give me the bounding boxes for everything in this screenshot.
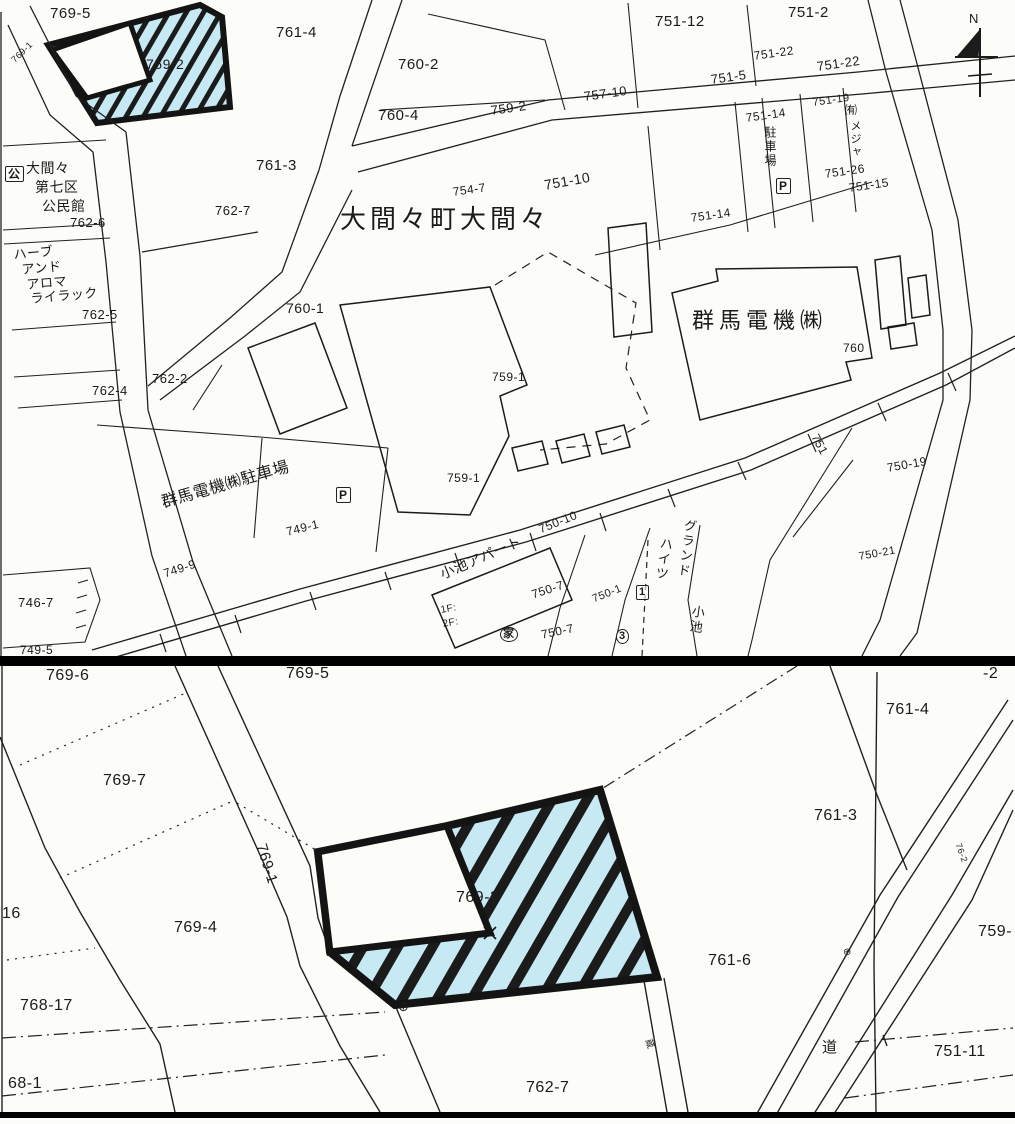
parcel-label: メジャ [849, 120, 860, 159]
marker-box-1: 1 [636, 585, 649, 600]
parcel-label: 762-7 [526, 1080, 569, 1096]
parcel-label: 761-3 [814, 808, 857, 824]
parcel-label: 769-5 [286, 666, 329, 682]
parcel-label: 760 [843, 342, 865, 354]
road-label: 道 [822, 1040, 838, 1055]
north-arrow-icon [955, 28, 998, 97]
map-frame-bar [0, 1112, 1015, 1118]
public-hall-icon: 公 [5, 166, 24, 182]
cadastral-map-page: 769-5769-2769-1761-4760-2751-12751-2751-… [0, 0, 1015, 1124]
cadastral-map-top[interactable]: 769-5769-2769-1761-4760-2751-12751-2751-… [0, 0, 1015, 656]
parcel-label: 751-2 [788, 5, 829, 20]
parcel-label: 大間々 [26, 161, 70, 175]
parcel-label: 761-4 [276, 25, 317, 40]
building-name: 小池 [688, 604, 705, 636]
parcel-label: 769-2 [146, 57, 184, 71]
north-label: N [969, 12, 979, 25]
parcel-label: 762-6 [70, 216, 106, 229]
parcel-label: ㈲ [845, 104, 858, 116]
parcel-label: 769-6 [46, 668, 89, 684]
parcel-label: 762-2 [152, 372, 188, 385]
parcel-label: 760-2 [398, 57, 439, 72]
place-name-title: 大間々町大間々 [340, 206, 550, 232]
survey-mark-icon: ⊕ [843, 948, 852, 958]
highlighted-parcel-label: 769-2 [456, 890, 499, 906]
parcel-label: 759-1 [447, 472, 480, 484]
parcel-label: 746-7 [18, 596, 54, 609]
buildings [248, 223, 930, 648]
survey-mark-icon: ⊕ [398, 1000, 409, 1013]
parking-icon: P [336, 487, 351, 503]
parcel-label: 759-1 [492, 371, 525, 383]
parcel-label: 762-5 [82, 308, 118, 321]
parcel-label: 公民館 [42, 199, 86, 213]
highlighted-parcel-mini[interactable] [48, 5, 230, 123]
company-name: 群馬電機㈱ [692, 310, 827, 332]
parcel-label: 68-1 [8, 1076, 42, 1092]
marker-circle-3: 3 [616, 629, 629, 644]
parcel-label: 16 [2, 906, 21, 922]
parcel-label: 751-11 [934, 1044, 986, 1060]
parcel-label: ハーブ [13, 245, 54, 261]
map-linework-bottom [0, 666, 1015, 1112]
cadastral-map-bottom[interactable]: 769-6769-5-2769-7761-4769-1761-3769-2167… [0, 666, 1015, 1112]
parcel-label: 762-4 [92, 384, 128, 397]
map-divider-bar [0, 656, 1015, 666]
parking-icon: P [776, 178, 791, 194]
parcel-label: 761-3 [256, 158, 297, 173]
parcel-label: 769-4 [174, 920, 217, 936]
parcel-label: 760-1 [286, 301, 324, 315]
parcel-label: 769-7 [103, 773, 146, 789]
parcel-label: 769-5 [50, 6, 91, 21]
parcel-label: -2 [983, 666, 998, 682]
parcel-label: 762-7 [215, 204, 251, 217]
marker-circle-house: 家 [500, 627, 518, 642]
parcel-label: 760-4 [378, 108, 419, 123]
parcel-label: 761-4 [886, 702, 929, 718]
parcel-label: 第七区 [35, 180, 79, 194]
parcel-label: 761-6 [708, 953, 751, 969]
parcel-label: 751-12 [655, 14, 705, 29]
parcel-label: 768-17 [20, 998, 73, 1014]
parcel-label: 749-5 [20, 644, 53, 656]
parcel-label: 759- [978, 924, 1012, 940]
parcel-label: 駐車場 [764, 126, 776, 168]
